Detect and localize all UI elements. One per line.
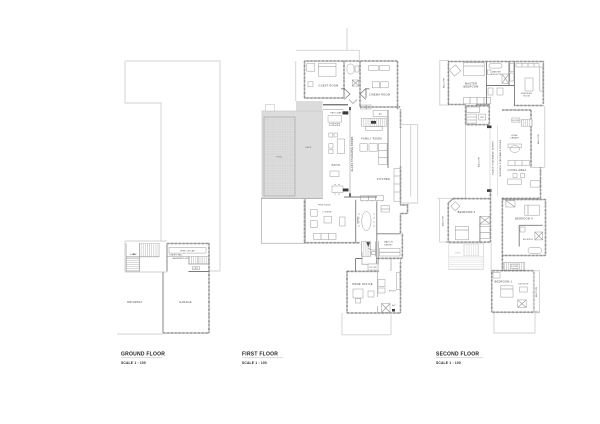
svg-text:HOME OFFICE: HOME OFFICE xyxy=(352,283,373,286)
svg-text:GARAGE: GARAGE xyxy=(179,301,192,304)
svg-text:BALCONY: BALCONY xyxy=(537,133,540,144)
svg-text:SCALE 1 : 100: SCALE 1 : 100 xyxy=(436,361,461,365)
svg-text:KITCHEN: KITCHEN xyxy=(377,178,390,181)
svg-text:POOL: POOL xyxy=(277,157,283,159)
svg-text:PATIO: PATIO xyxy=(332,164,341,167)
svg-text:PANTRY: PANTRY xyxy=(384,243,393,246)
svg-text:FOYER: FOYER xyxy=(369,267,377,269)
svg-text:EN-SUITE: EN-SUITE xyxy=(523,239,534,241)
svg-text:BALCONY: BALCONY xyxy=(442,215,445,226)
svg-text:STAIRS: STAIRS xyxy=(455,252,462,255)
svg-text:WOODEN STACKABLE DOORS: WOODEN STACKABLE DOORS xyxy=(499,139,502,176)
svg-text:LIVING AREA: LIVING AREA xyxy=(508,169,527,172)
svg-text:LIFT: LIFT xyxy=(480,117,485,119)
svg-text:SCALE 1 : 100: SCALE 1 : 100 xyxy=(121,361,146,365)
svg-text:EN-SUITE: EN-SUITE xyxy=(518,284,529,286)
svg-text:BALCONY: BALCONY xyxy=(442,77,445,88)
svg-text:DINING: DINING xyxy=(358,216,360,224)
svg-text:BEDROOM 3: BEDROOM 3 xyxy=(458,211,476,214)
svg-text:FIRST FLOOR: FIRST FLOOR xyxy=(242,352,278,358)
svg-text:FAMILY ROOM: FAMILY ROOM xyxy=(361,137,381,140)
svg-text:LIFT: LIFT xyxy=(194,268,199,270)
svg-text:FOYER: FOYER xyxy=(511,266,519,268)
svg-text:STAIRS HALL: STAIRS HALL xyxy=(169,254,183,257)
svg-text:FOYER: FOYER xyxy=(512,120,520,122)
svg-text:BASEMENT ENT.: BASEMENT ENT. xyxy=(173,257,190,260)
svg-text:LOUNGE: LOUNGE xyxy=(323,212,332,214)
svg-text:EN-SUITE: EN-SUITE xyxy=(491,74,502,76)
svg-text:FIRE PLACE: FIRE PLACE xyxy=(318,204,331,207)
svg-text:BEDROOM: BEDROOM xyxy=(463,86,478,89)
svg-text:GLASS STACKABLE DOORS: GLASS STACKABLE DOORS xyxy=(492,141,495,175)
svg-text:DECK: DECK xyxy=(306,147,312,149)
svg-text:A/C: A/C xyxy=(379,113,383,116)
svg-text:STUDY: STUDY xyxy=(389,291,397,293)
svg-text:GLASS STACKABLE DOORS: GLASS STACKABLE DOORS xyxy=(351,136,354,171)
svg-text:BEDROOM 4: BEDROOM 4 xyxy=(515,217,533,220)
svg-text:GROUND FLOOR: GROUND FLOOR xyxy=(121,352,165,358)
svg-text:WALK-IN: WALK-IN xyxy=(384,241,393,244)
svg-text:DRIVEWAY: DRIVEWAY xyxy=(127,301,142,304)
svg-text:A/C: A/C xyxy=(392,304,396,307)
svg-text:BEDROOM 1: BEDROOM 1 xyxy=(495,280,513,283)
svg-text:LIBRARY: LIBRARY xyxy=(510,137,520,140)
svg-text:ROOM: ROOM xyxy=(523,96,530,98)
svg-text:PATIO BAR: PATIO BAR xyxy=(330,111,342,114)
svg-text:GUEST ROOM: GUEST ROOM xyxy=(318,85,338,88)
svg-text:BALCONY: BALCONY xyxy=(535,286,538,297)
svg-text:LOBBY: LOBBY xyxy=(131,254,138,256)
svg-text:WINE CELLAR: WINE CELLAR xyxy=(180,249,195,252)
svg-text:BALCONY: BALCONY xyxy=(478,156,481,167)
svg-text:SCALE 1 : 100: SCALE 1 : 100 xyxy=(242,361,267,365)
svg-text:CINEMA ROOM: CINEMA ROOM xyxy=(369,94,390,97)
svg-text:SECOND FLOOR: SECOND FLOOR xyxy=(436,352,479,358)
